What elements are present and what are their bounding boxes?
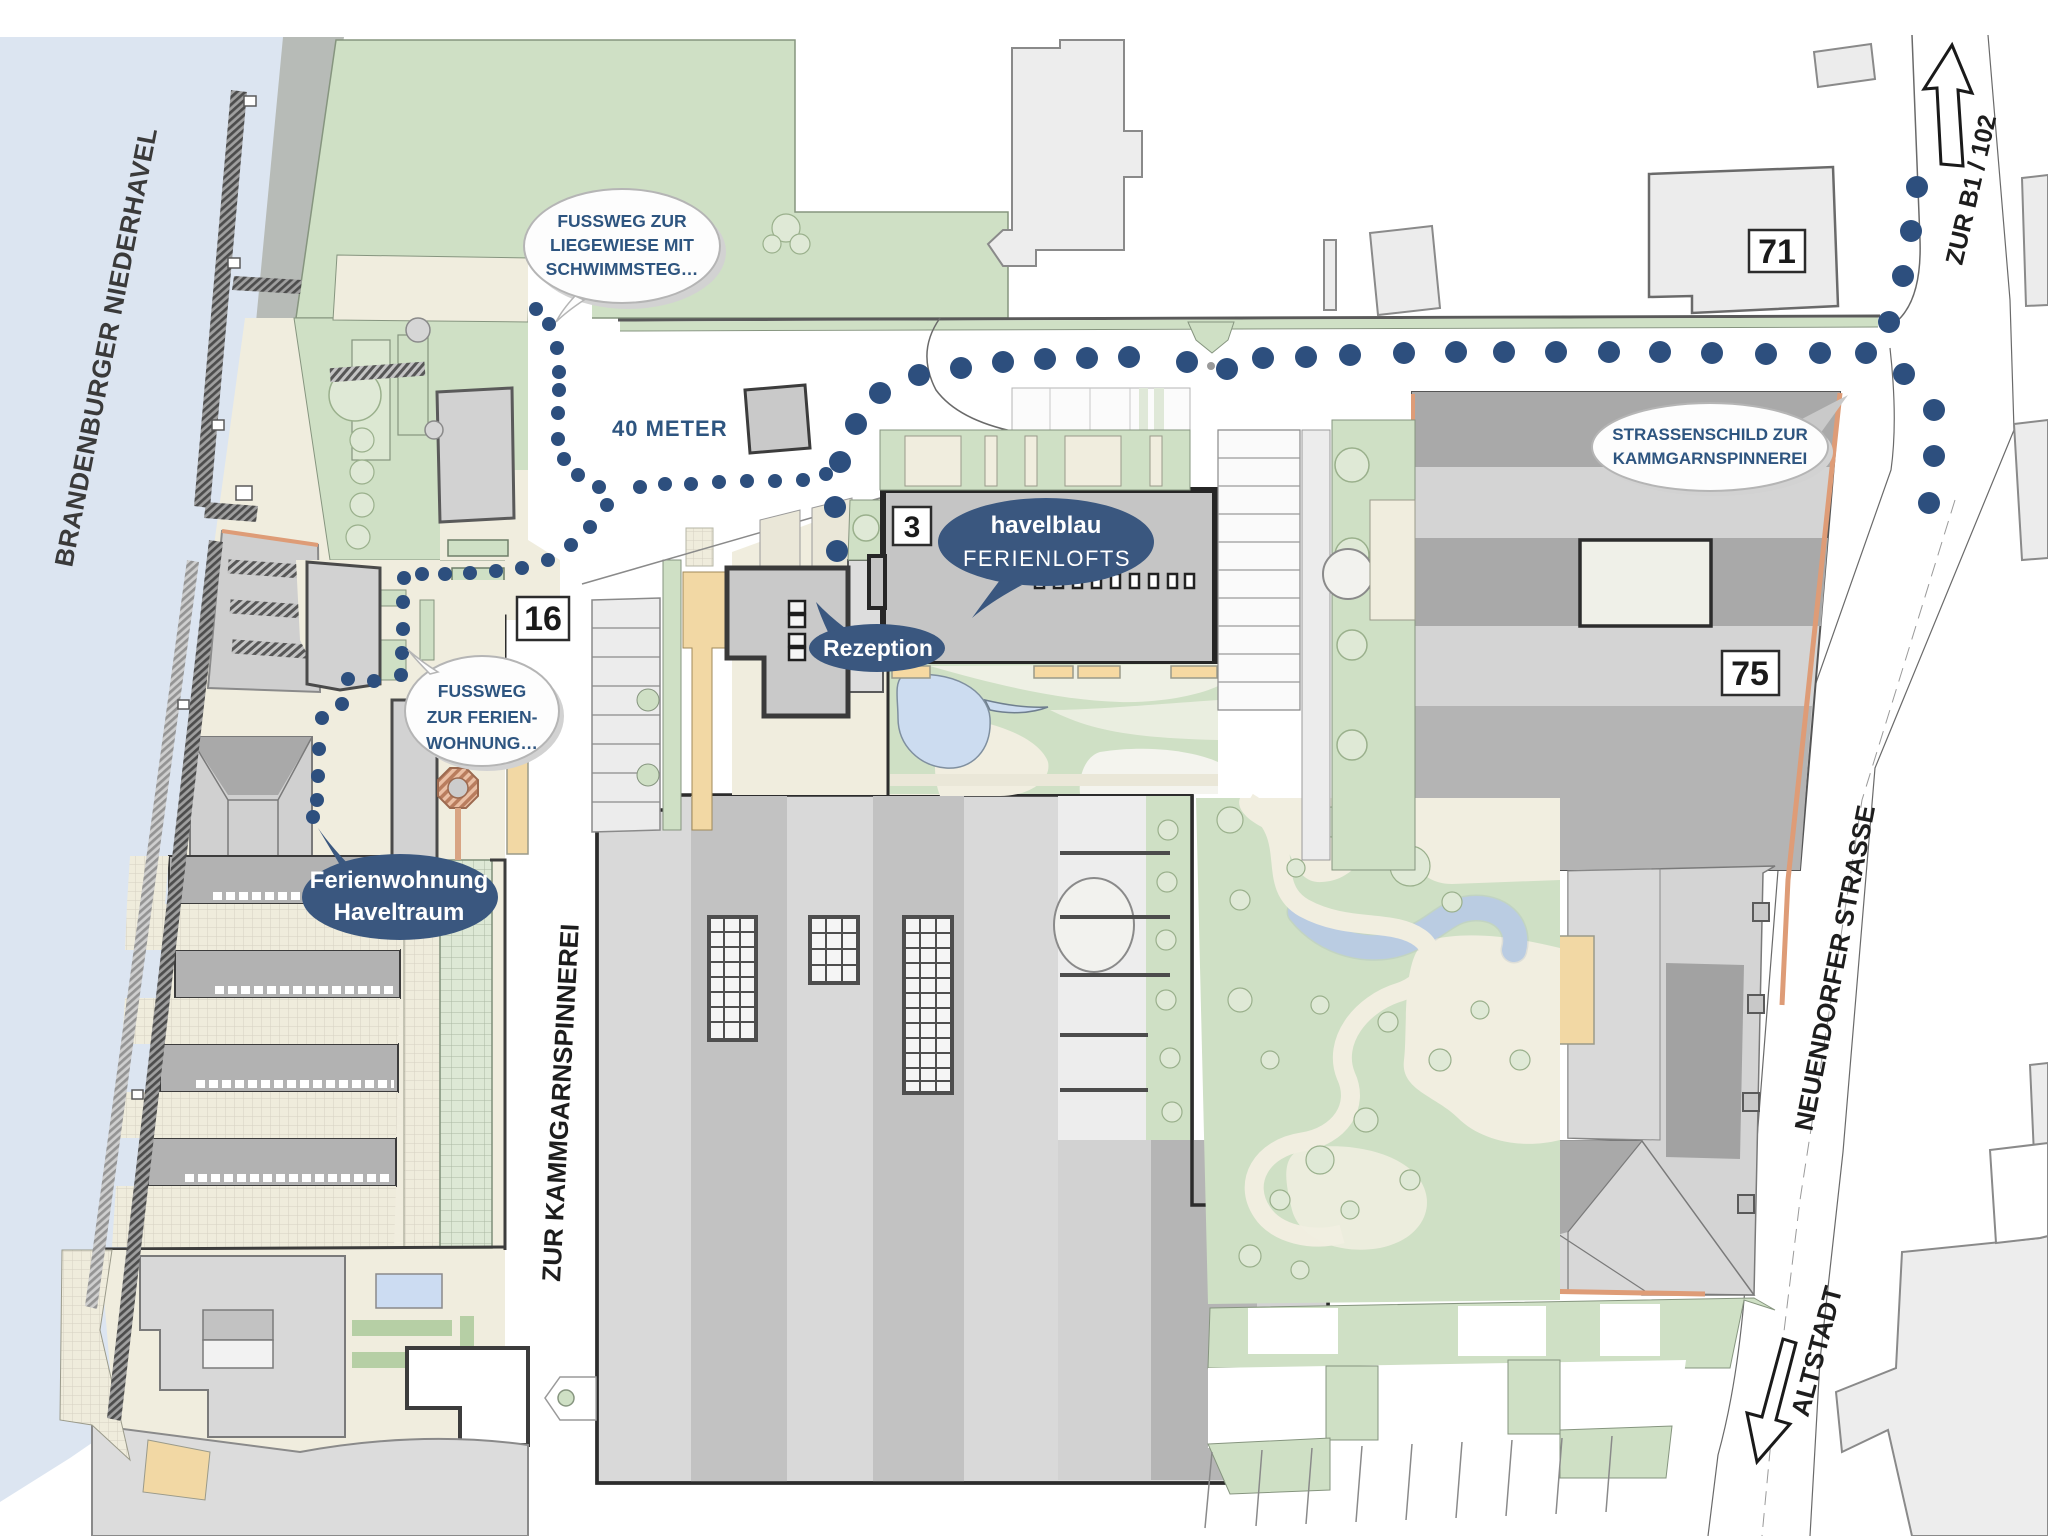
svg-text:Rezeption: Rezeption xyxy=(823,635,933,661)
svg-text:FUSSWEG ZUR: FUSSWEG ZUR xyxy=(557,211,687,231)
svg-text:FUSSWEG: FUSSWEG xyxy=(438,681,526,701)
svg-text:40 METER: 40 METER xyxy=(612,416,728,441)
svg-text:16: 16 xyxy=(524,600,562,638)
svg-text:ZUR FERIEN-: ZUR FERIEN- xyxy=(427,707,538,727)
svg-text:75: 75 xyxy=(1731,655,1769,693)
svg-text:SCHWIMMSTEG…: SCHWIMMSTEG… xyxy=(546,259,699,279)
svg-text:71: 71 xyxy=(1758,233,1796,271)
svg-text:WOHNUNG…: WOHNUNG… xyxy=(426,733,538,753)
svg-text:3: 3 xyxy=(904,511,921,544)
svg-text:STRASSENSCHILD ZUR: STRASSENSCHILD ZUR xyxy=(1612,425,1808,444)
svg-text:havelblau: havelblau xyxy=(991,512,1102,539)
svg-text:FERIENLOFTS: FERIENLOFTS xyxy=(963,546,1131,571)
svg-text:Ferienwohnung: Ferienwohnung xyxy=(310,867,489,894)
svg-text:KAMMGARNSPINNEREI: KAMMGARNSPINNEREI xyxy=(1613,449,1808,468)
svg-text:LIEGEWIESE MIT: LIEGEWIESE MIT xyxy=(550,235,694,255)
svg-text:Haveltraum: Haveltraum xyxy=(334,899,465,926)
